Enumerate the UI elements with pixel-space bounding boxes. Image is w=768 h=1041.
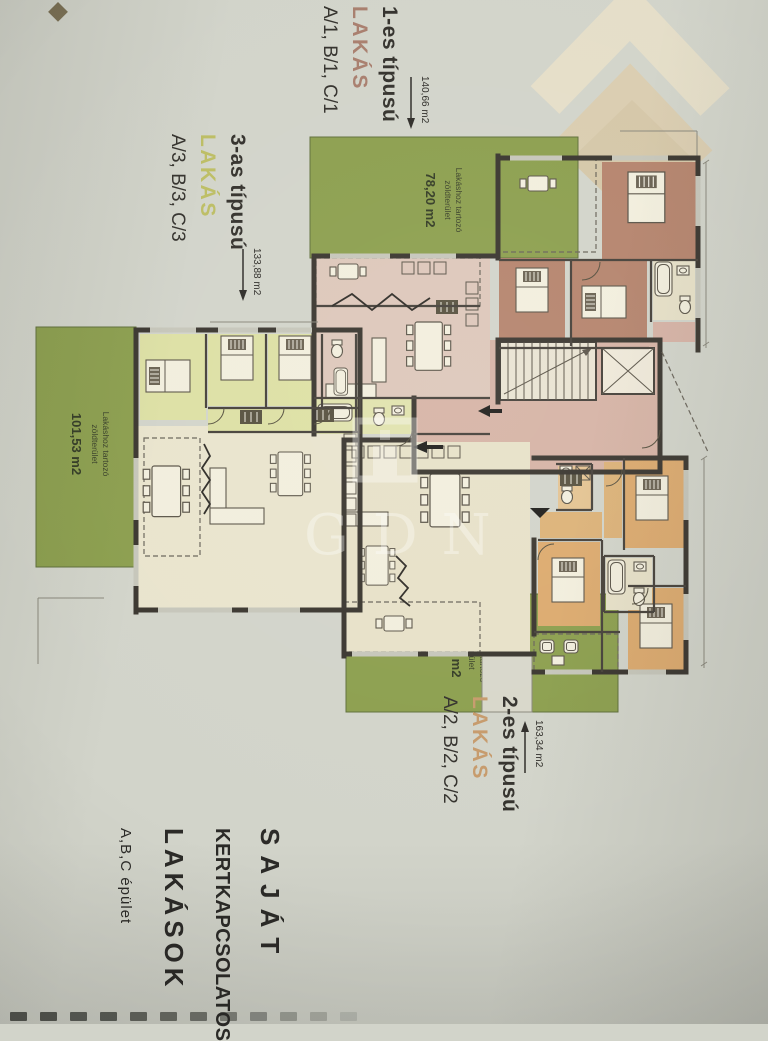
type2-label-block: 2-es típusú LAKÁS A/2, B/2, C/2 <box>434 696 524 896</box>
type3-area-label: 133,88 m2 <box>237 248 262 308</box>
type1-units: A/1, B/1, C/1 <box>314 6 344 138</box>
entrance-dashed-line <box>662 352 708 452</box>
type1-area-arrow-icon <box>405 76 417 130</box>
type3-units: A/3, B/3, C/3 <box>162 134 192 334</box>
staircase <box>500 342 596 400</box>
green-area-left: 101,53 m2 zöldterület Lakáshoz tartozó <box>36 327 136 567</box>
type2-area-value: 163,34 m2 <box>533 720 544 767</box>
type2-area-label: 163,34 m2 <box>519 720 544 780</box>
type2-units: A/2, B/2, C/2 <box>434 696 464 896</box>
elevator <box>602 348 654 394</box>
type1-word: LAKÁS <box>344 6 374 138</box>
type3-area-value: 133,88 m2 <box>251 248 262 295</box>
green-left-label2: zöldterület <box>90 424 100 464</box>
type2-word: LAKÁS <box>464 696 494 896</box>
type3-word: LAKÁS <box>192 134 222 334</box>
green-top-label1: Lakáshoz tartozó <box>454 168 464 233</box>
corner-diamond-mark <box>48 2 68 22</box>
green-left-area-value: 101,53 m2 <box>69 413 84 475</box>
title-subtitle: A,B,C épület <box>108 828 142 1023</box>
green-top-area-value: 78,20 m2 <box>423 173 438 228</box>
photographed-floorplan-page: { "watermark": { "text": "GDN" }, "title… <box>0 0 768 1024</box>
type2-area-arrow-icon <box>519 720 531 774</box>
type1-title: 1-es típusú <box>374 6 404 138</box>
title-line3: LAKÁSOK <box>150 828 198 1023</box>
title-line2: KERTKAPCSOLATOS <box>198 828 246 1023</box>
type1-label-block: 1-es típusú LAKÁS A/1, B/1, C/1 <box>314 6 404 138</box>
green-area-top: 78,20 m2 zöldterület Lakáshoz tartozó <box>310 137 578 258</box>
title-line1: SAJÁT <box>246 828 294 1023</box>
green-left-label1: Lakáshoz tartozó <box>101 412 111 477</box>
type1-area-label: 140,66 m2 <box>405 76 430 134</box>
type1-area-value: 140,66 m2 <box>419 76 430 123</box>
type3-area-arrow-icon <box>237 248 249 302</box>
green-top-label2: zöldterület <box>443 180 453 220</box>
page-title-block: SAJÁT KERTKAPCSOLATOS LAKÁSOK A,B,C épül… <box>108 828 294 1023</box>
